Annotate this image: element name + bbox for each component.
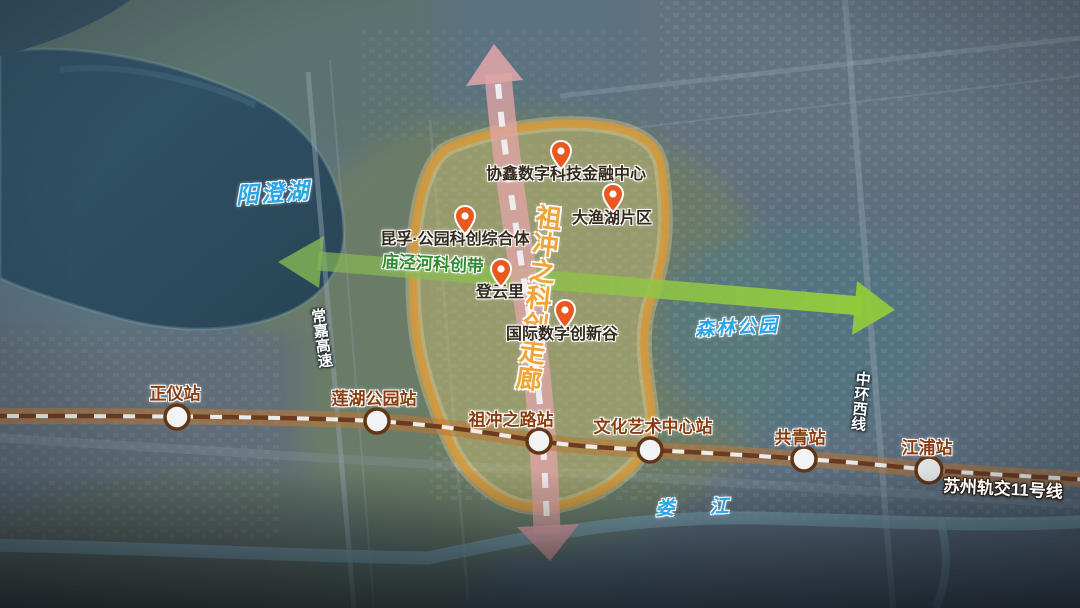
poi-pin-intl-digital-valley[interactable] (554, 299, 576, 329)
poi-pin-dayu-lake[interactable] (602, 183, 624, 213)
map-pin-icon (490, 258, 512, 288)
poi-pin-dengyunli[interactable] (490, 258, 512, 288)
lake-label: 阳澄湖 (234, 171, 311, 210)
poi-pin-gcl-center[interactable] (550, 140, 572, 170)
map-pin-icon (554, 299, 576, 329)
river-label: 娄 江 (655, 491, 731, 521)
forest-park-label: 森林公园 (694, 310, 779, 341)
station-label-zuchongzhi-rd: 祖冲之路站 (469, 406, 554, 431)
map-pin-icon (550, 140, 572, 170)
bottom-shade (0, 470, 1080, 608)
satellite-planning-map[interactable]: 协鑫数字科技金融中心 大渔湖片区 昆孚·公园科创综合体 登云里 国际数字创新谷 … (0, 0, 1080, 608)
belt-horizontal-label: 庙泾河科创带 (381, 247, 484, 277)
map-pin-icon (602, 183, 624, 213)
poi-pin-kunfu-complex[interactable] (454, 205, 476, 235)
station-label-jiangpu: 江浦站 (902, 434, 953, 459)
station-label-zhengyi: 正仪站 (150, 380, 201, 405)
station-label-culture-art-center: 文化艺术中心站 (594, 413, 713, 438)
map-pin-icon (454, 205, 476, 235)
station-label-gongqing: 共青站 (775, 424, 826, 449)
station-label-lianhu-park: 莲湖公园站 (332, 385, 417, 410)
